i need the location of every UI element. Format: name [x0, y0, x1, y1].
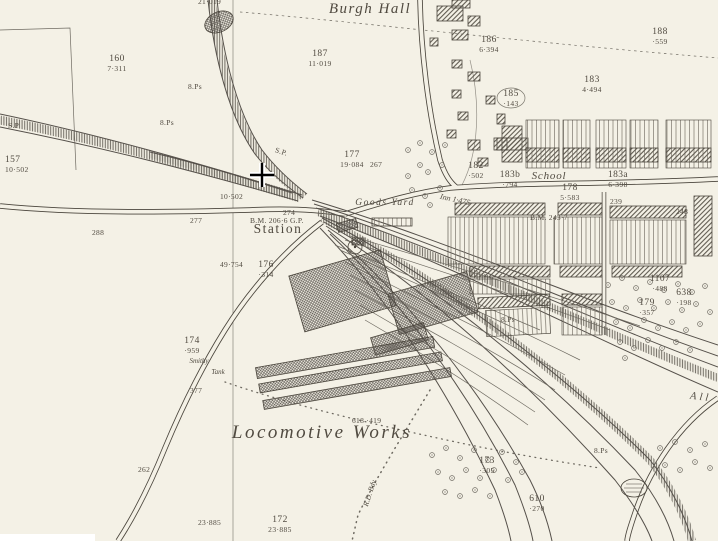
tile-edge: [0, 534, 95, 541]
annotation: 23·885: [198, 519, 221, 527]
parcel-label: 174·959: [184, 337, 199, 355]
parcel-label: 182·502: [468, 162, 483, 180]
label-burgh-hall: Burgh Hall: [329, 2, 411, 18]
terrace-blocks-north: [526, 120, 711, 168]
parcel-label: 183b·794: [500, 171, 521, 189]
annotation: 618 ·419: [352, 417, 381, 425]
label-locomotive-works: Locomotive Works: [232, 423, 412, 443]
parcel-label: 185·143: [503, 90, 518, 108]
map-linework: [0, 0, 718, 541]
annotation: 248: [676, 208, 688, 216]
map-canvas[interactable]: Burgh Hall Station Goods Yard School Loc…: [0, 0, 718, 541]
parcel-label: 173·305: [479, 457, 494, 475]
parcel-label: 176·314: [258, 261, 273, 279]
parcel-label: 18711·019: [308, 50, 331, 68]
label-smithy: Smithy: [189, 358, 208, 365]
annotation: 10·502: [220, 193, 243, 201]
annotation: 21·019: [198, 0, 221, 6]
label-school: School: [532, 171, 567, 183]
annotation: B.M. 243·7: [530, 214, 568, 222]
parcel-label: 17719·084: [340, 151, 364, 169]
annotation: 8.Ps: [501, 316, 515, 324]
annotation: 262: [138, 466, 150, 474]
parcel-label: 15710·502: [5, 156, 29, 174]
parcel-label: 17223·885: [268, 516, 292, 534]
parcel-label: 1607·311: [107, 55, 126, 73]
parcel-label: 179·357: [639, 299, 654, 317]
school-building: [494, 126, 528, 162]
parcel-label: 1866·394: [479, 36, 499, 54]
annotation: 377: [190, 387, 202, 395]
parcel-label: 1107·488: [650, 275, 670, 293]
parcel-label: 183a6·398: [608, 171, 628, 189]
annotation: 267: [370, 161, 382, 169]
terrace-blocks-south: [448, 196, 712, 337]
annotation: 8.Ps: [594, 447, 608, 455]
annotation: 8.Ps: [160, 119, 174, 127]
annotation: 288: [92, 229, 104, 237]
label-tank: Tank: [211, 369, 224, 376]
parcel-label: 1785·583: [560, 184, 580, 202]
annotation: B.M. 206·6 G.P.: [250, 217, 304, 225]
parcel-label: 610·270: [529, 495, 544, 513]
annotation: 49·754: [220, 261, 243, 269]
annotation: 277: [190, 217, 202, 225]
annotation: 8.Ps: [188, 83, 202, 91]
annotation: 239: [610, 198, 622, 206]
label-goods-yard: Goods Yard: [355, 199, 414, 209]
annotation: S.P: [8, 122, 19, 130]
parcel-label: 188·559: [652, 28, 667, 46]
parcel-label: 1834·494: [582, 76, 602, 94]
copse: [201, 7, 237, 38]
parcel-label: 638·198: [676, 289, 691, 307]
